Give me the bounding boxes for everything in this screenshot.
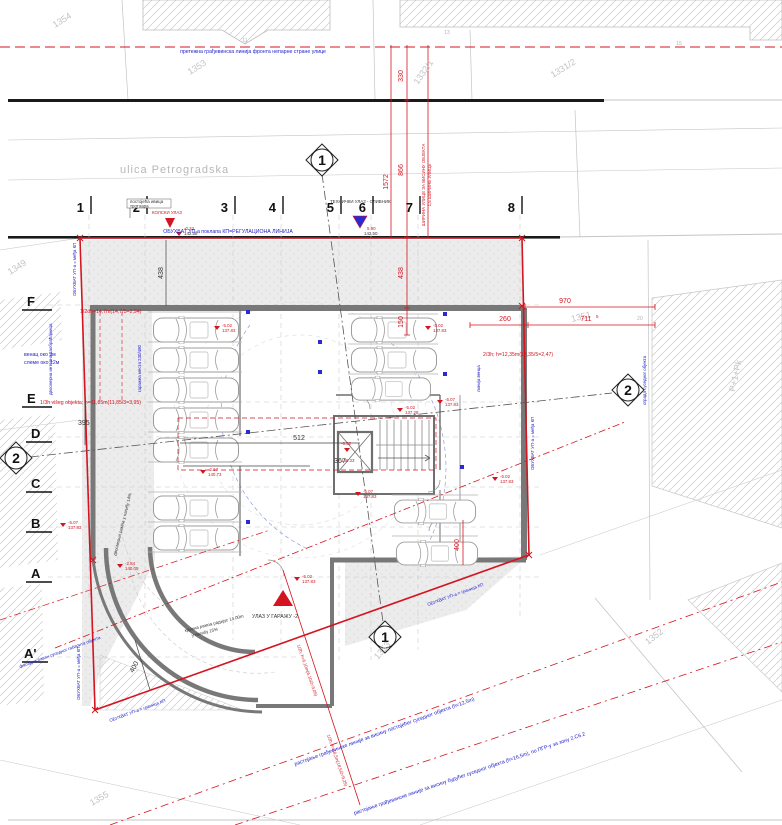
- note-street-width-2: 1,5 ШИРИНЕ УЛИЦЕ: [427, 164, 432, 207]
- dim-260: 260: [499, 316, 511, 323]
- car-icon: [154, 406, 239, 434]
- parcel-1352: 1352: [643, 626, 665, 646]
- dim-330: 330: [398, 70, 405, 82]
- parcel-1353-top: 1353: [186, 58, 208, 77]
- svg-text:137.83: 137.83: [363, 494, 377, 499]
- note-right-line: 2/3h; h=12,35m(12,35/5=2,47): [483, 352, 553, 358]
- car-icon: [396, 540, 477, 567]
- dim-1572: 1572: [383, 174, 390, 190]
- section-2-label: 2: [12, 450, 20, 466]
- svg-text:-6.52: -6.52: [341, 441, 352, 446]
- grid-col-7: 7: [406, 200, 413, 215]
- section-1-label: 1: [318, 152, 326, 168]
- note-top-building-line: претежна грађевинска линија фронта непар…: [180, 49, 326, 55]
- section-marker-2-right: 2: [612, 374, 644, 406]
- elevation-entrance: -5.02 137.83: [294, 574, 316, 584]
- dim-395: 395: [78, 420, 90, 427]
- house-no-15: 15: [676, 41, 682, 47]
- svg-text:140.73: 140.73: [208, 472, 222, 477]
- car-icon: [154, 524, 239, 552]
- note-sidewalk-2: тротоара: [130, 204, 149, 209]
- grid-row-C: C: [31, 476, 41, 491]
- elevation-ramp-mid: -2.17 140.73: [200, 467, 348, 478]
- dim-20: 20: [637, 316, 643, 322]
- note-boundary-bl: ОБУХВАТ УП-а = међа КП: [76, 647, 81, 700]
- elevation-street-right: 5.90 142.50: [364, 226, 378, 236]
- technical-entrance-icon: [353, 216, 367, 228]
- vehicle-entrance-icon: [165, 218, 175, 228]
- dim-150: 150: [398, 316, 405, 328]
- note-boundary-right: ОБУХВАТ УП-а = међа КП: [530, 417, 535, 470]
- car-icon: [352, 346, 437, 374]
- grid-row-E: E: [27, 391, 36, 406]
- svg-text:137.83: 137.83: [302, 579, 316, 584]
- svg-text:137.83: 137.83: [68, 525, 82, 530]
- grid-row-A: A: [31, 566, 41, 581]
- parcel-1332-1: 1332/1: [411, 58, 435, 86]
- car-icon: [154, 346, 239, 374]
- parcel-1331-2: 1331/2: [549, 57, 578, 80]
- plan-canvas: 1 1 2 2 1 2 3 4 5 6 7 8: [0, 0, 782, 825]
- car-icon: [154, 494, 239, 522]
- car-icon: [154, 436, 239, 464]
- elevation-bottom-left: -5.07 137.83: [60, 520, 82, 530]
- dim-400-red: 400: [454, 539, 461, 551]
- note-diag1: 1/2h; h=6,10m(6,10/2=3,05): [296, 644, 319, 698]
- dim-438-red: 438: [398, 267, 405, 279]
- svg-text:137.28: 137.28: [405, 410, 419, 415]
- elevation-bottom-right: -5.02 137.83: [492, 474, 514, 484]
- grid-col-3: 3: [221, 200, 228, 215]
- note-boundary-left: ОБУХВАТ УП-а = међа КП: [72, 243, 77, 296]
- note-regulation-line: ОБУХВАТ УП-а поклапа КП=РЕГУЛАЦИОНА ЛИНИ…: [163, 229, 293, 235]
- note-street-width-1: ШИРИНА УЛИЦЕ ЗА ВИСИНУ ОБЈЕКТА: [421, 144, 426, 227]
- note-e-line: 1/3h višeg objekta; h=11,85m(11,85/3=3,9…: [40, 400, 141, 406]
- svg-text:142.50: 142.50: [364, 231, 378, 236]
- parcel-1354: 1354: [51, 11, 73, 30]
- site-plan-drawing: 1 1 2 2 1 2 3 4 5 6 7 8: [0, 0, 782, 825]
- car-icon: [352, 316, 437, 344]
- parcel-1355: 1355: [88, 789, 110, 808]
- house-no-13: 13: [444, 30, 450, 36]
- svg-text:140.09: 140.09: [125, 566, 139, 571]
- grid-row-D: D: [31, 426, 40, 441]
- parcel-1349: 1349: [6, 258, 28, 277]
- note-technical-entrance: ТЕХНИЧКИ УЛАЗ - СЛИВНИК: [330, 199, 391, 204]
- svg-text:136.33: 136.33: [341, 458, 355, 463]
- note-f-line: 1/2dh=14,7m(14,7/5=2,94): [80, 309, 142, 315]
- elevation-vestibule: -5.02 137.28: [397, 405, 419, 415]
- car-icon: [352, 376, 431, 402]
- note-vehicle-entrance: КОЛСКИ УЛАЗ: [152, 210, 182, 215]
- section-2-label: 2: [624, 382, 632, 398]
- dim-866: 866: [398, 164, 405, 176]
- street-name: ulica Petrogradska: [120, 164, 229, 176]
- grid-row-B: B: [31, 516, 40, 531]
- note-stalls: гаражна места 230/480: [137, 344, 142, 392]
- dim-711: 711: [580, 316, 591, 323]
- svg-text:137.83: 137.83: [433, 328, 447, 333]
- dim-970: 970: [559, 298, 571, 305]
- note-distance-future: растојање грађевинске линије за висину б…: [353, 731, 586, 816]
- grid-row-F: F: [27, 294, 35, 309]
- car-icon: [154, 376, 239, 404]
- svg-text:137.83: 137.83: [222, 328, 236, 333]
- svg-text:137.83: 137.83: [500, 479, 514, 484]
- section-marker-1-top: 1: [306, 144, 338, 176]
- grid-col-8: 8: [508, 200, 515, 215]
- note-cornice: линија венца: [476, 365, 481, 392]
- dim-512: 512: [293, 435, 305, 442]
- note-sleme: слеме око 12м: [24, 360, 60, 366]
- note-garage-entry: УЛАЗ У ГАРАЖУ -2: [252, 614, 298, 620]
- grid-col-4: 4: [269, 200, 277, 215]
- note-road: двосмерна интерна саобраћајница: [48, 323, 53, 395]
- note-fence: ограда суседног објекта: [642, 355, 647, 405]
- svg-text:137.83: 137.83: [445, 402, 459, 407]
- dim-438-black: 438: [158, 267, 165, 279]
- dim-711-sup: 5: [596, 314, 599, 319]
- house-no-11: 11: [242, 38, 247, 44]
- grid-col-1: 1: [77, 200, 84, 215]
